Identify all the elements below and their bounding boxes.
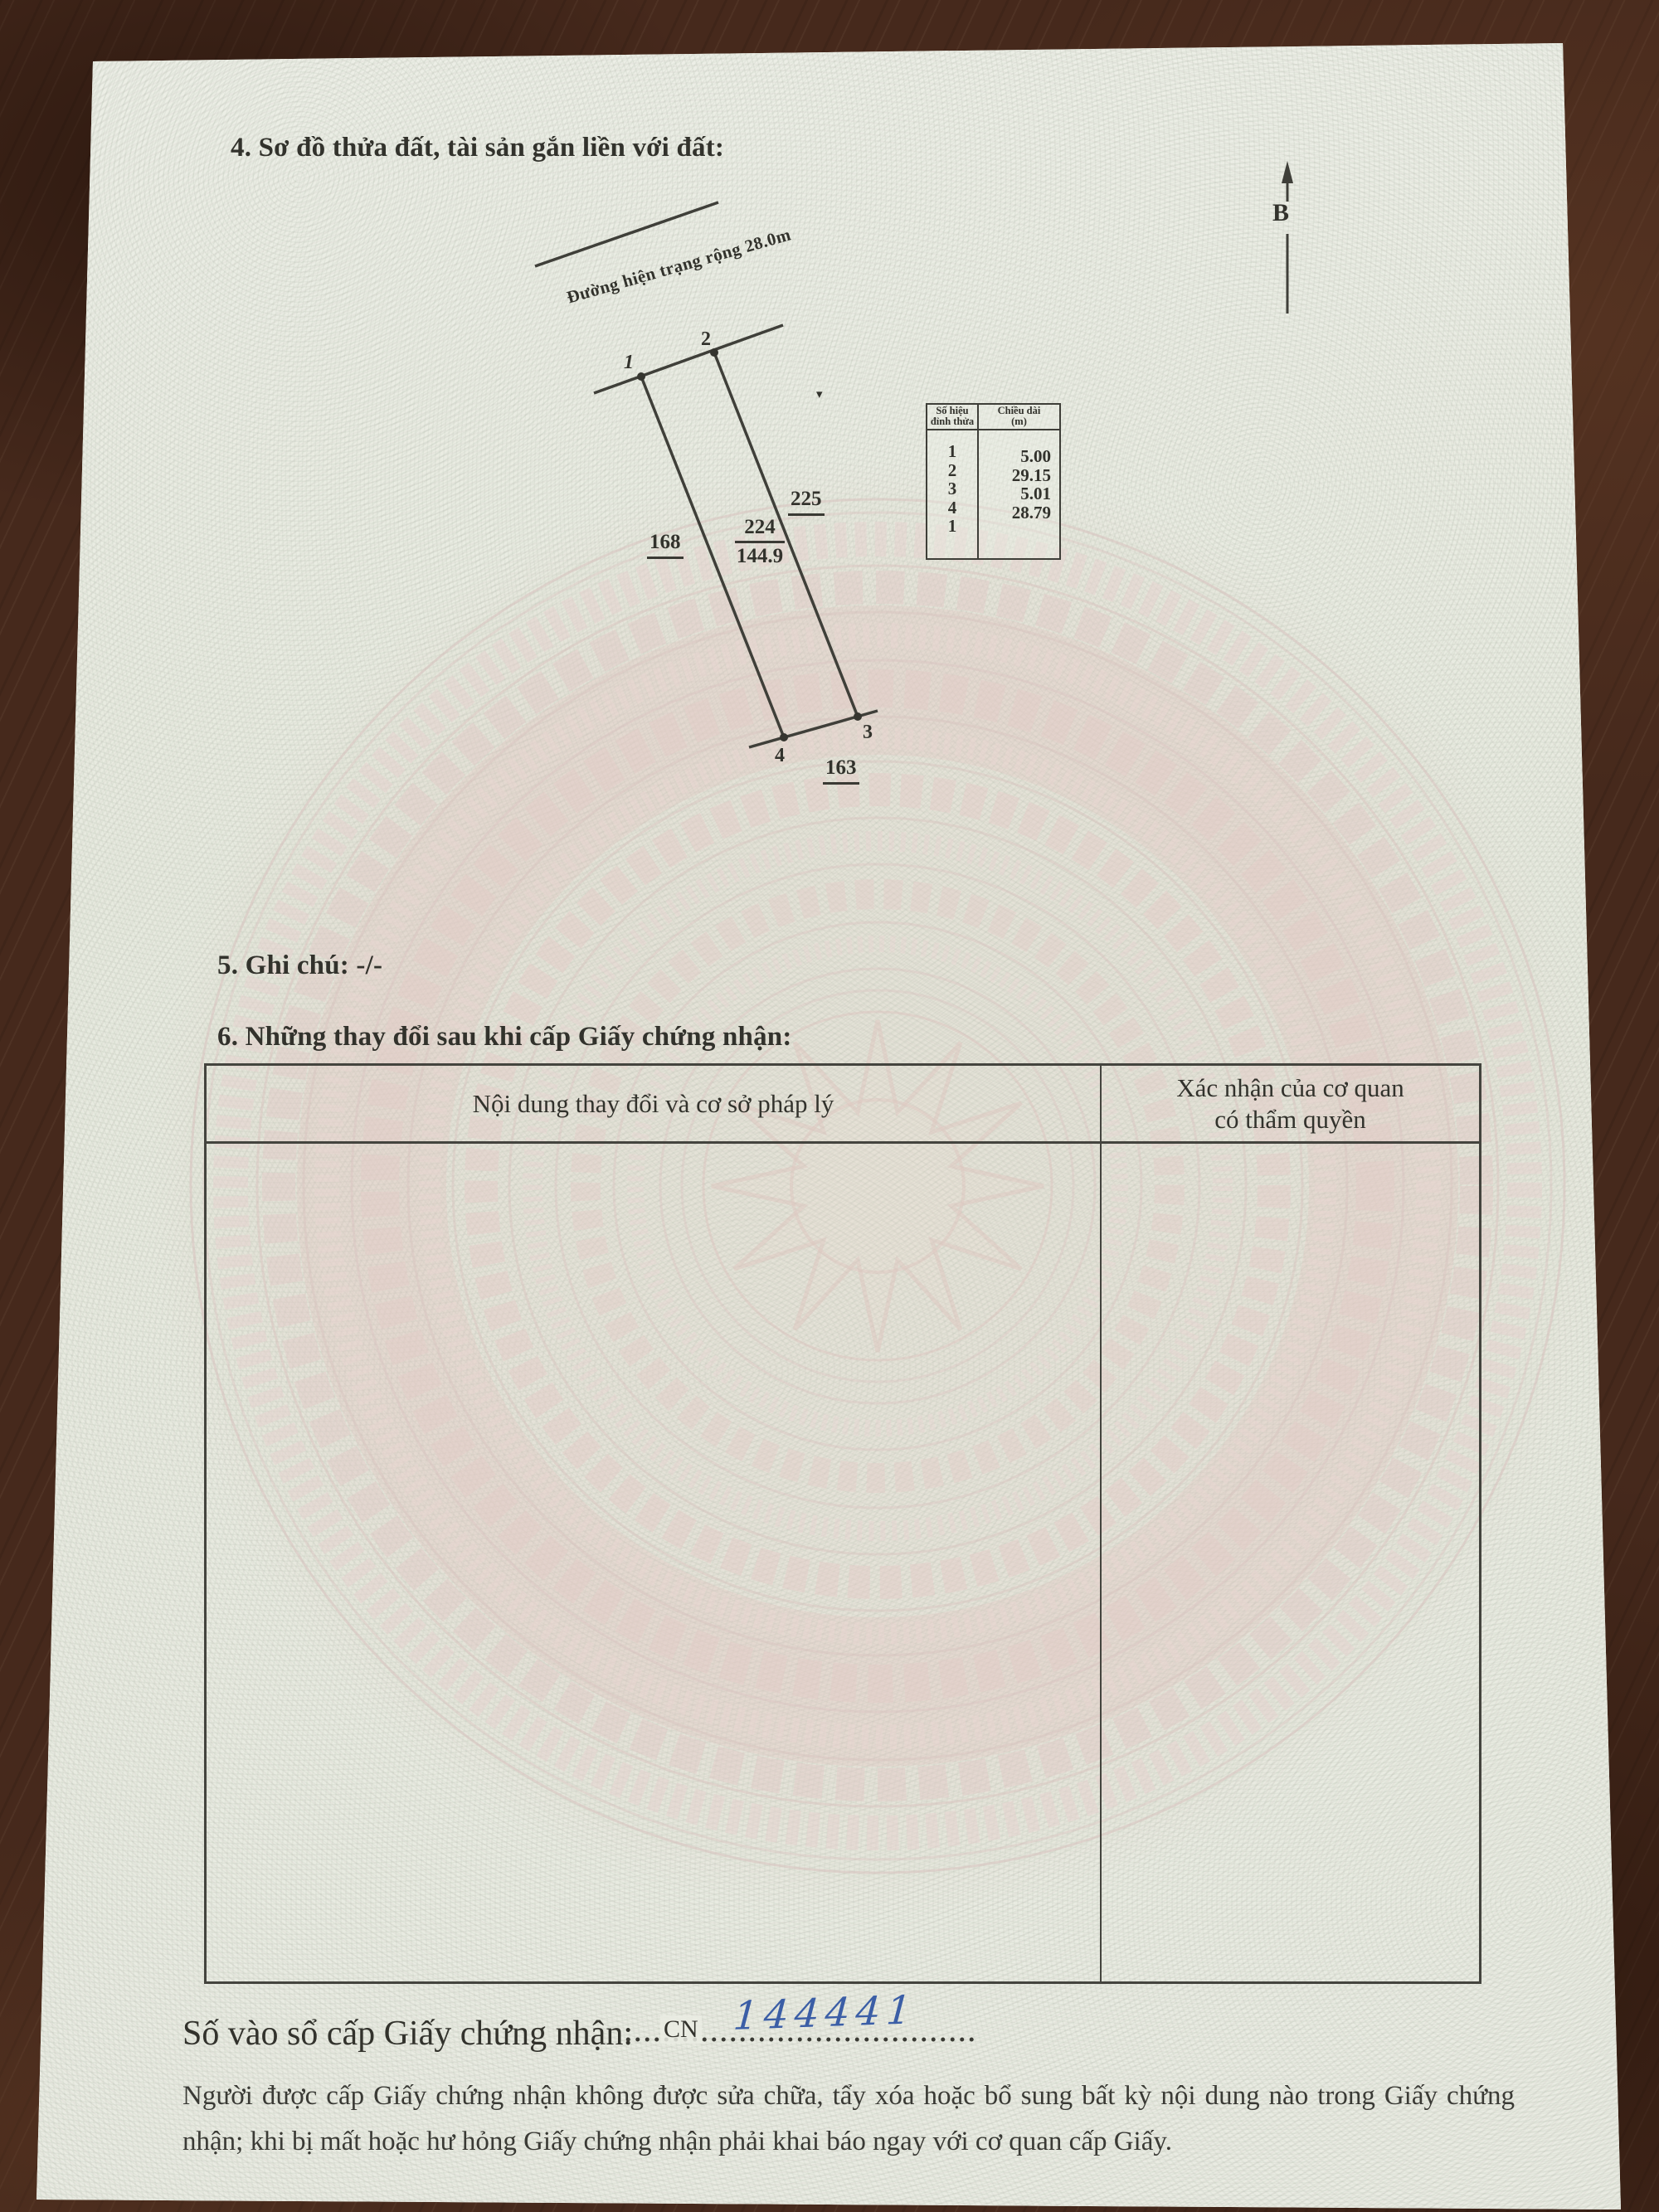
vertex-dots (637, 348, 862, 741)
certificate-page: 4. Sơ đồ thửa đất, tài sản gắn liền với … (0, 0, 1659, 2212)
photo-of-land-certificate: { "sections": { "s4_title": "4. Sơ đồ th… (0, 0, 1659, 2212)
compass-north-arrow (1282, 161, 1293, 314)
parcel-boundary-lines (535, 202, 878, 747)
parcel-diagram (0, 0, 1659, 2212)
